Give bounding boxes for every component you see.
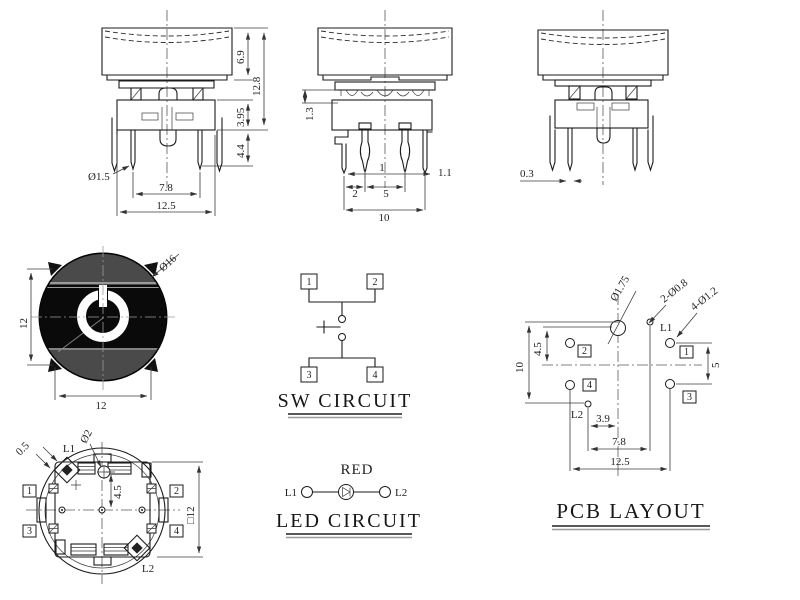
- rear-right-snap: [648, 116, 653, 170]
- side-led-leg1-tab: [359, 123, 371, 129]
- pcb-pin2: 2: [582, 346, 587, 357]
- pcb-led-hole-l2: [585, 401, 591, 407]
- led-l1-label: L1: [285, 487, 297, 499]
- pcb-l1-label: L1: [660, 322, 672, 334]
- pcb-dim-led-holes: 2-Ø0.8: [658, 277, 690, 306]
- pcb-pin-hole-4: [566, 381, 575, 390]
- pcb-layout-title: PCB LAYOUT: [556, 499, 705, 523]
- rear-view: 0.3: [520, 10, 668, 185]
- dim-plate-offset: 1.3: [304, 107, 316, 121]
- pcb-pin-hole-3: [666, 380, 675, 389]
- front-slot-right: [176, 113, 193, 120]
- sw-pin1: 1: [307, 277, 312, 288]
- dim-body-width: 12.5: [156, 200, 176, 212]
- dim-total-height: 12.8: [251, 76, 263, 96]
- front-plunger-dome: [159, 88, 177, 100]
- front-body: [117, 100, 215, 130]
- dim-cap-dia: Ø16: [157, 252, 179, 274]
- sw-wires: [309, 289, 375, 367]
- front-center-post: [160, 130, 176, 146]
- side-led-leg1: [360, 129, 369, 171]
- pcb-dim-pin-row-span: 5: [710, 362, 722, 368]
- pcb-pin-hole-1: [666, 339, 675, 348]
- pcb-dim-led-pitch: 7.8: [612, 436, 626, 448]
- dim-lead-width: 0.5: [14, 440, 33, 459]
- dim-pin-dia: Ø1.5: [88, 171, 110, 183]
- sw-contact-top: [339, 316, 346, 323]
- pcb-pin-hole-2: [566, 339, 575, 348]
- sw-actuator: [317, 321, 340, 333]
- bottom-pin2: 2: [174, 486, 179, 497]
- bottom-corner-post-bl: [56, 540, 65, 554]
- sw-circuit-title: SW CIRCUIT: [278, 390, 413, 412]
- pcb-pin1: 1: [684, 347, 689, 358]
- bottom-led2-label: L2: [142, 563, 154, 575]
- rear-slot-left: [577, 103, 594, 110]
- led-diode-circle: [339, 485, 354, 500]
- dim-pitch-a: 2: [352, 188, 358, 200]
- pcb-center-hole: [611, 321, 626, 336]
- bottom-bottom-notch: [94, 557, 111, 565]
- pcb-dim-hole-offset: 4.5: [532, 342, 544, 356]
- pcb-dim-l2-to-center: 3.9: [596, 413, 610, 425]
- sw-pin3: 3: [307, 370, 312, 381]
- pcb-l2-label: L2: [571, 409, 583, 421]
- bottom-led1-label: L1: [63, 443, 75, 455]
- dim-body-square: □12: [185, 506, 197, 524]
- led1-component: [54, 457, 79, 482]
- led-circuit-title: LED CIRCUIT: [276, 510, 422, 532]
- pcb-dim-led-row-span: 10: [514, 362, 526, 374]
- rear-left-snap: [550, 116, 555, 170]
- led-color-label: RED: [341, 462, 374, 478]
- front-right-pin: [198, 130, 202, 169]
- dim-knob-height: 12: [18, 318, 30, 329]
- top-view-knob: 12 12 Ø16: [18, 246, 179, 412]
- front-view: 6.9 12.8 3.95 4.4 Ø1.5 7.8 12.5: [88, 10, 268, 216]
- front-plate: [119, 81, 214, 88]
- dim-pin-length: 4.4: [235, 144, 247, 158]
- rear-plunger-dome: [595, 87, 612, 100]
- dim-pin-thickness: 0.3: [520, 168, 534, 180]
- sw-pin2: 2: [373, 277, 378, 288]
- dim-knob-width: 12: [96, 400, 107, 412]
- side-led-leg2: [400, 129, 409, 171]
- dim-hole-offset: 4.5: [112, 485, 124, 499]
- pcb-terminal-boxes: 2 4 1 3: [578, 345, 696, 403]
- bottom-pin3: 3: [27, 526, 32, 537]
- bottom-plus-mark: [71, 480, 81, 490]
- rear-right-pin: [633, 128, 637, 170]
- dim-cap-height: 6.9: [235, 50, 247, 64]
- pcb-pin3: 3: [687, 392, 692, 403]
- led-l2-label: L2: [395, 487, 407, 499]
- dim-hole-dia: Ø2: [78, 428, 95, 446]
- dim-body-height: 3.95: [235, 107, 247, 127]
- led-circuit: RED L1 L2 LED CIRCUIT: [276, 462, 422, 538]
- led-terminal-l2: [380, 487, 391, 498]
- bottom-pin4: 4: [174, 526, 179, 537]
- side-view: 1.3 1 1.1 2 5 10: [302, 10, 452, 224]
- dim-pitch-b: 5: [383, 188, 389, 200]
- technical-drawing-sheet: 6.9 12.8 3.95 4.4 Ø1.5 7.8 12.5 1.3: [0, 0, 800, 600]
- pcb-dim-pin-holes: 4-Ø1.2: [688, 285, 720, 313]
- pcb-dim-overall: 12.5: [610, 456, 630, 468]
- pcb-dim-center-hole: Ø1.75: [608, 274, 632, 304]
- sw-pin4: 4: [373, 370, 378, 381]
- dim-pitch-total: 10: [379, 212, 391, 224]
- side-body: [332, 100, 432, 130]
- side-left-pin: [342, 144, 346, 173]
- rear-left-pin: [568, 128, 572, 170]
- rear-body: [555, 100, 648, 128]
- rear-center-post: [597, 128, 610, 143]
- rear-slot-right: [612, 103, 629, 110]
- dim-pin-pitch: 7.8: [159, 182, 173, 194]
- sw-circuit: 1 2 3 4 SW CIRCUIT: [278, 274, 413, 418]
- side-left-bracket: [335, 130, 348, 144]
- sw-contact-bottom: [339, 334, 346, 341]
- dim-pin-w-outer: 1.1: [438, 167, 452, 179]
- front-right-snap: [217, 118, 222, 171]
- front-left-snap: [112, 118, 117, 171]
- pcb-pin4: 4: [587, 380, 592, 391]
- side-led-leg2-tab: [399, 123, 411, 129]
- front-left-pin: [131, 130, 135, 169]
- drawing-svg: 6.9 12.8 3.95 4.4 Ø1.5 7.8 12.5 1.3: [0, 0, 800, 600]
- side-right-pin: [423, 130, 432, 173]
- led-terminal-l1: [302, 487, 313, 498]
- pcb-layout: 2 4 1 3 Ø1.75 2-Ø0.8 L1 4-Ø1.2 L2 10 4.5…: [514, 274, 722, 530]
- bottom-view: L1 L2 1 3 2 4 □12 4.5 0.5 Ø2: [14, 428, 203, 584]
- dim-pin-w-center: 1: [379, 162, 385, 174]
- bottom-pin1: 1: [27, 486, 32, 497]
- front-slot-left: [142, 113, 158, 120]
